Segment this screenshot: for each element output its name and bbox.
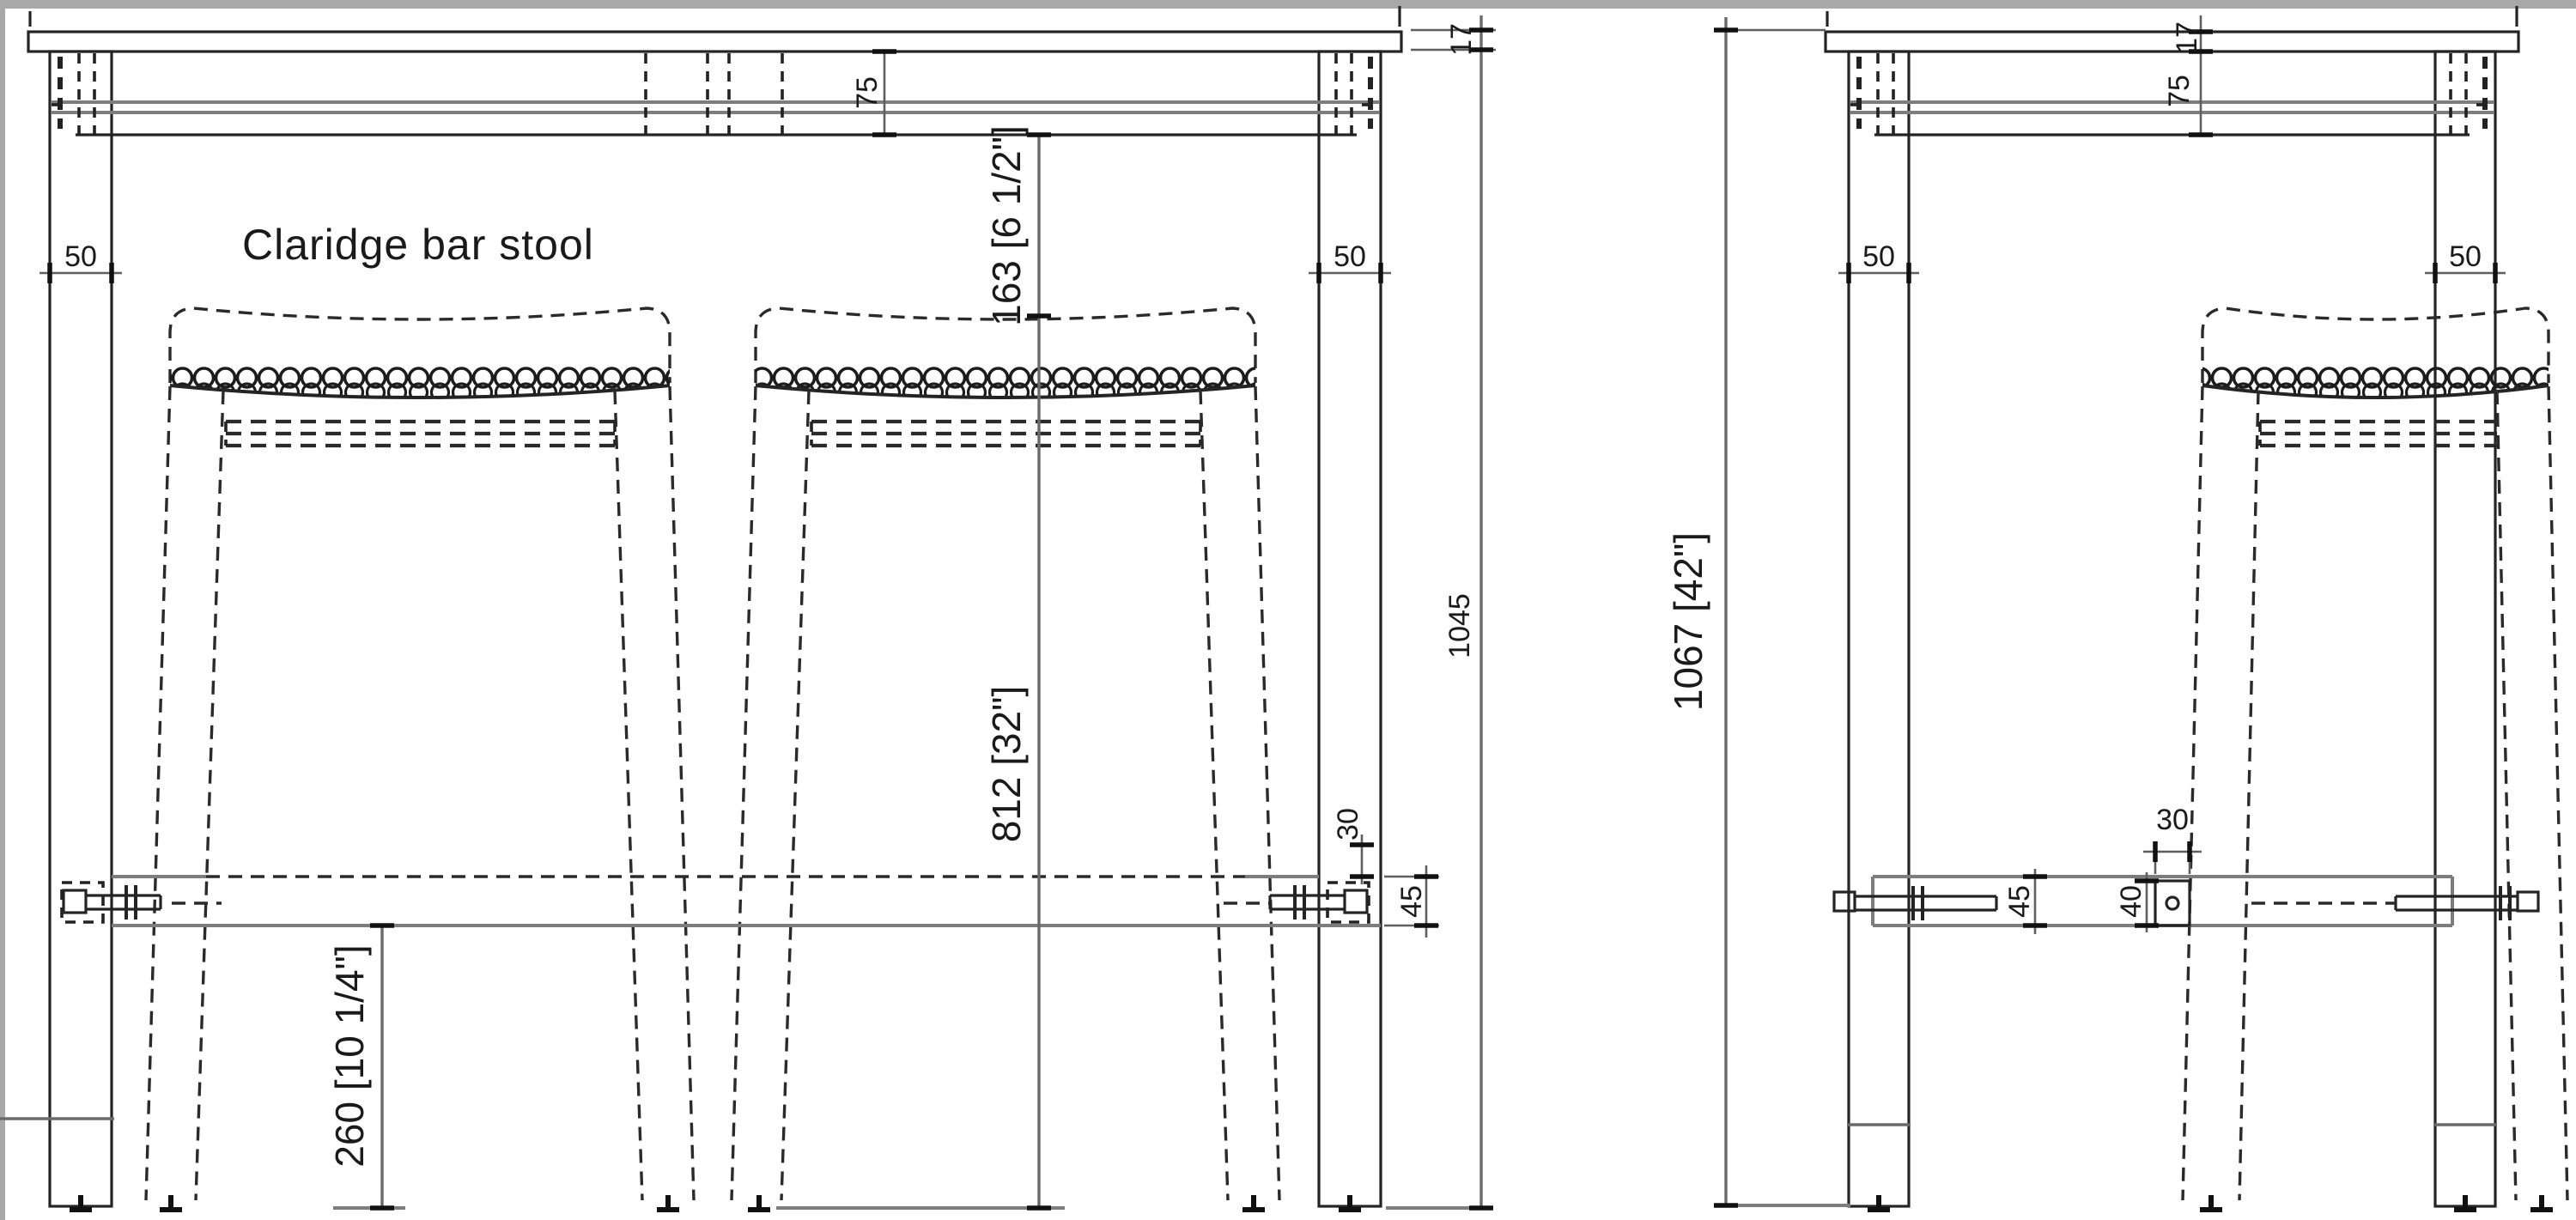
front-dimensions: 75 17 1045 163 [6 1/2"] 812 [32"] 50 <box>39 15 1496 1208</box>
side-stool <box>2183 308 2567 1200</box>
window-top-edge <box>0 0 2576 9</box>
dim-leg-width-left-label: 50 <box>1862 240 1895 273</box>
front-tabletop <box>28 32 1401 52</box>
dim-stretcher-height-label: 45 <box>2003 885 2036 918</box>
cross-rail-section <box>2155 881 2190 926</box>
side-right-leg <box>2435 52 2495 1206</box>
side-stretcher <box>1834 877 2538 926</box>
front-left-leg <box>50 52 112 1206</box>
dim-seat-height-label: 812 [32"] <box>984 686 1029 843</box>
side-view: 17 75 50 50 1067 [42"] 45 40 <box>1666 6 2567 1212</box>
front-leg-joinery-hidden-lines <box>52 53 1379 134</box>
drawing-canvas[interactable]: 75 17 1045 163 [6 1/2"] 812 [32"] 50 <box>0 0 2576 1220</box>
side-dimensions: 17 75 50 50 1067 [42"] 45 40 <box>1666 15 2506 1205</box>
window-left-edge <box>0 0 5 1220</box>
bolt-hole <box>2166 897 2178 909</box>
front-feet-marks <box>70 1195 1361 1212</box>
dim-leg-width-right-label: 50 <box>2449 240 2482 273</box>
dim-apron-to-seat-label: 163 [6 1/2"] <box>984 125 1029 326</box>
dim-leg-width-left-label: 50 <box>64 240 97 273</box>
front-stool-1 <box>146 308 694 1200</box>
dim-apron-height-label: 75 <box>851 76 884 109</box>
dim-apron-height-label: 75 <box>2163 75 2196 107</box>
front-stretcher <box>62 877 1381 926</box>
dim-top-thickness-label: 17 <box>1445 23 1478 56</box>
dim-stretcher-clearance-label: 260 [10 1/4"] <box>327 944 372 1167</box>
side-feet-marks <box>1868 1195 2553 1212</box>
drawing-viewport: 75 17 1045 163 [6 1/2"] 812 [32"] 50 <box>0 0 2576 1220</box>
front-right-leg <box>1319 52 1381 1206</box>
dim-cross-rail-width-label: 30 <box>2156 804 2189 836</box>
dim-tenon-width-label: 30 <box>1332 808 1364 841</box>
dim-cross-rail-height-label: 40 <box>2115 885 2148 918</box>
dim-overall-height-label: 1067 [42"] <box>1666 532 1710 711</box>
front-view: 75 17 1045 163 [6 1/2"] 812 [32"] 50 <box>0 6 1496 1212</box>
dim-leg-width-right-label: 50 <box>1334 240 1366 273</box>
side-left-leg <box>1849 52 1909 1206</box>
dim-under-top-height-label: 1045 <box>1443 593 1476 659</box>
dim-top-thickness-label: 17 <box>2171 21 2203 54</box>
drawing-title: Claridge bar stool <box>242 221 594 269</box>
dim-stretcher-height-label: 45 <box>1395 885 1428 918</box>
